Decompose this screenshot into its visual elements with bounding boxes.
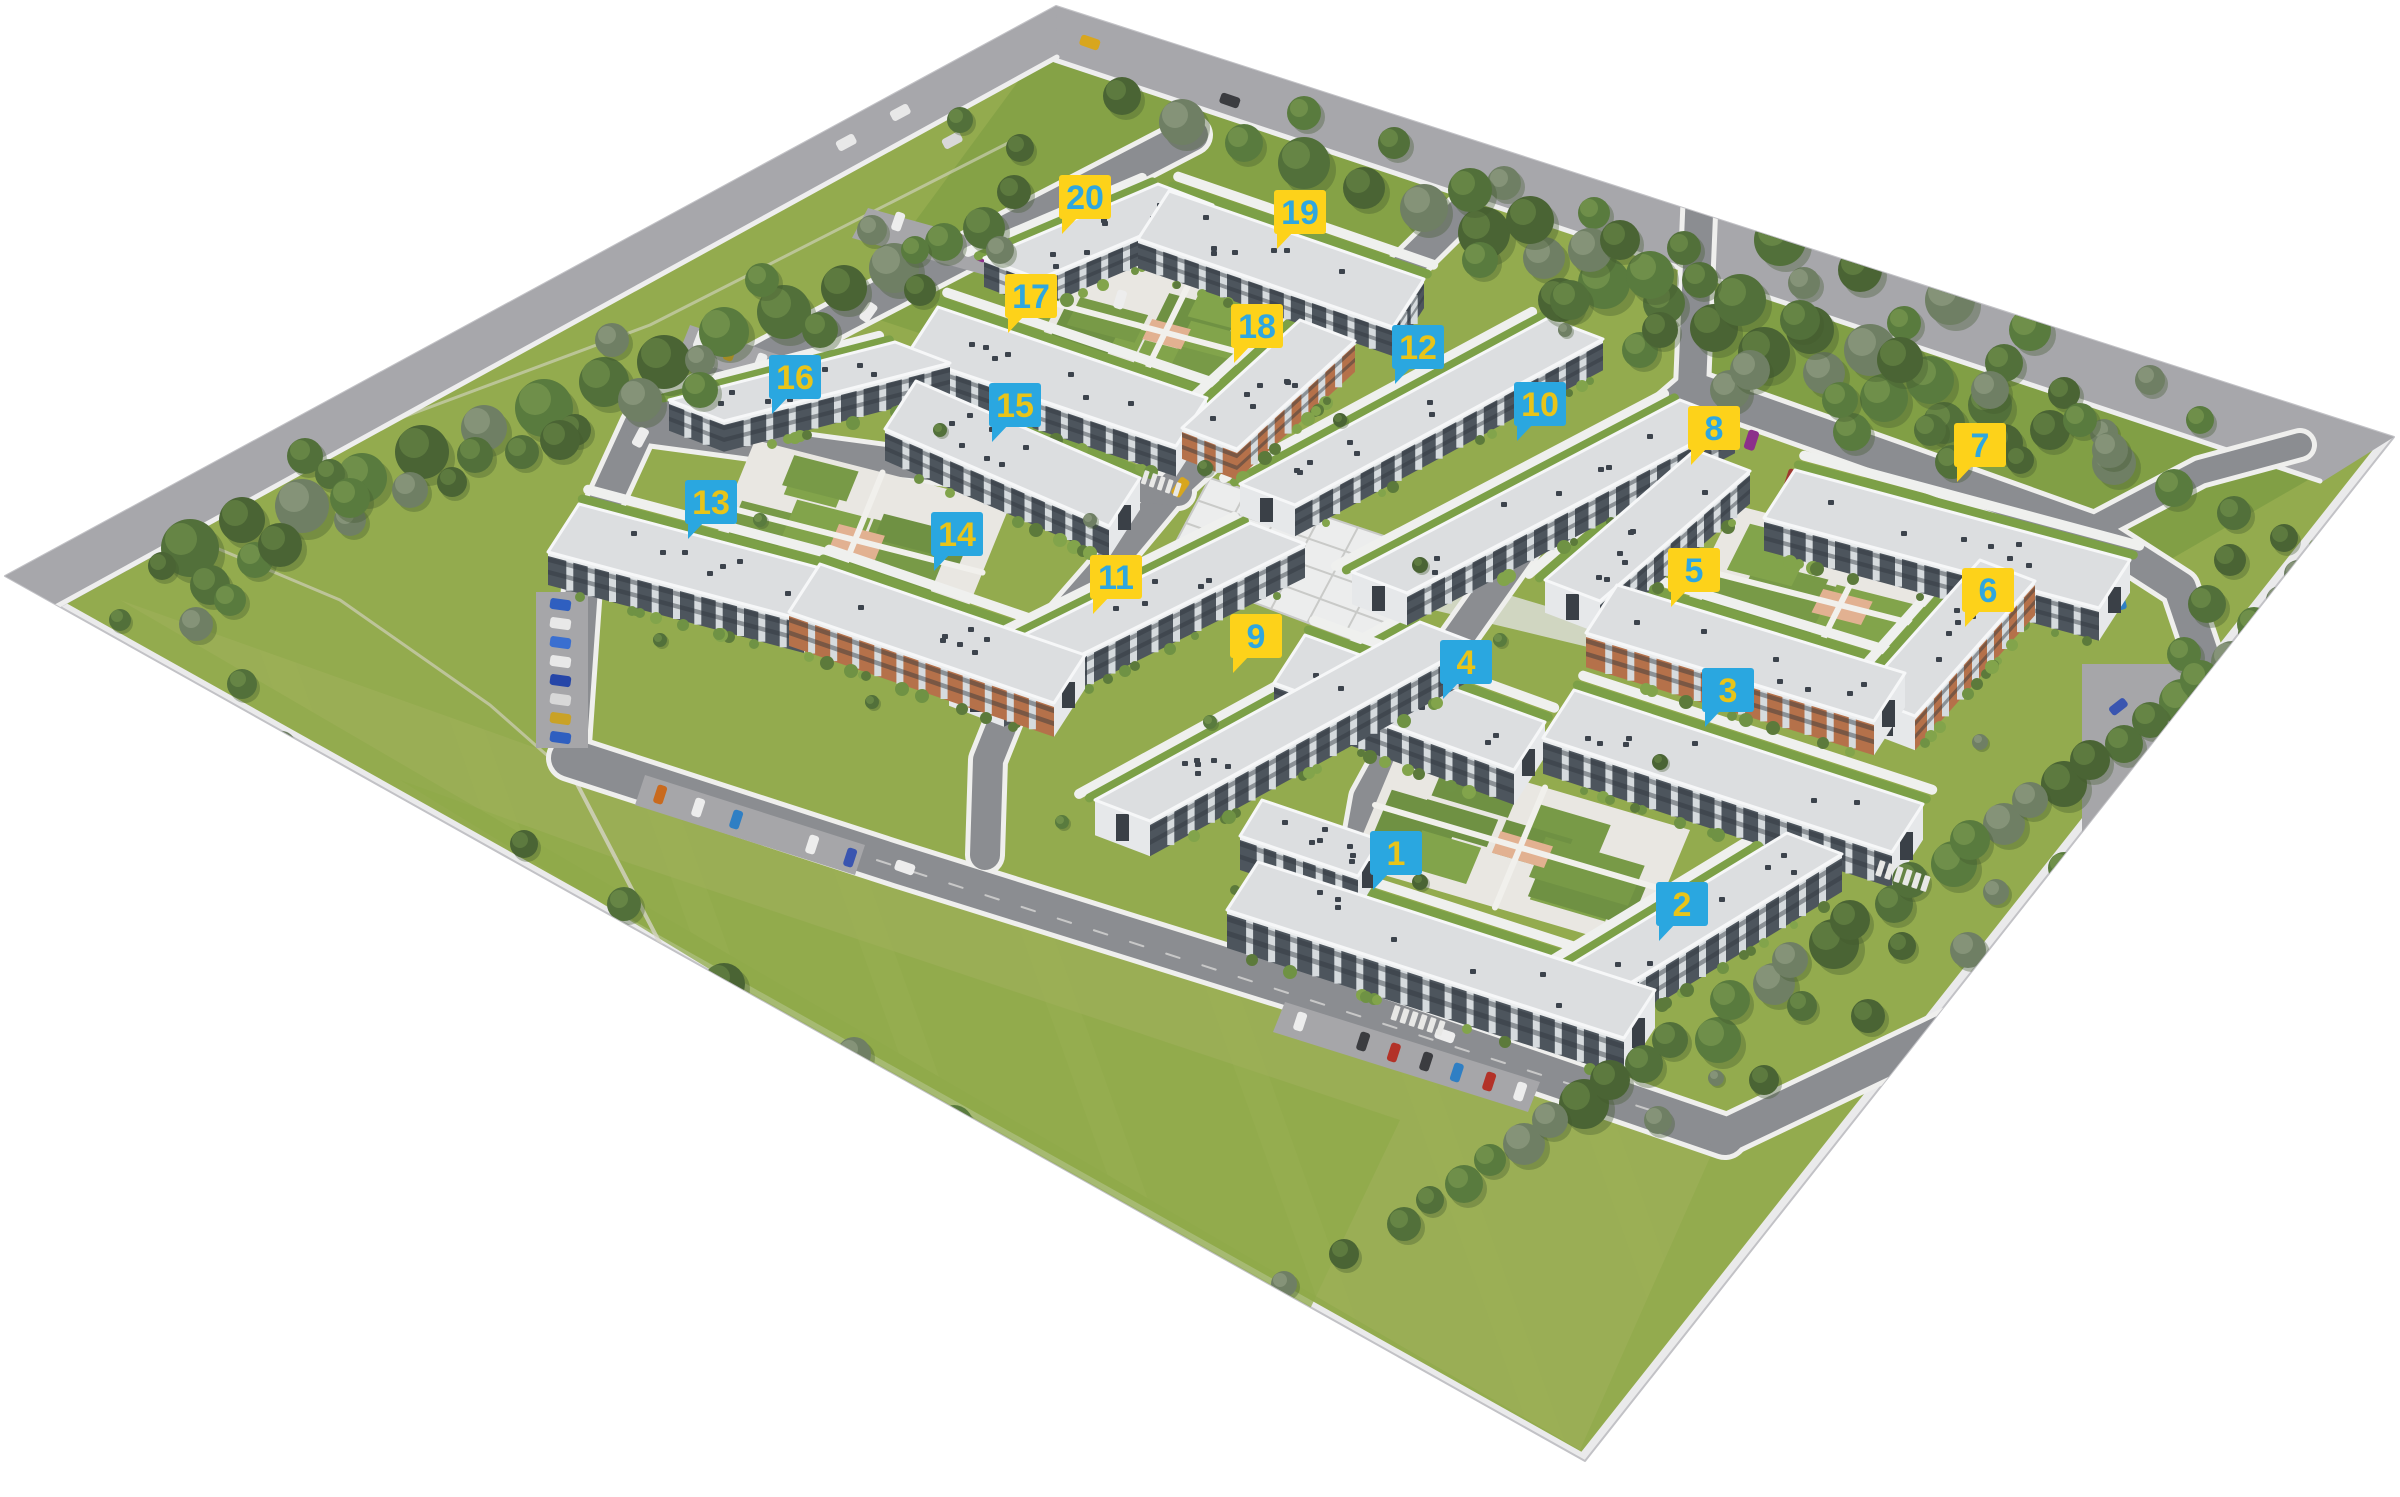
svg-text:18: 18 — [1238, 308, 1276, 346]
svg-text:16: 16 — [776, 359, 814, 397]
svg-text:6: 6 — [1979, 572, 1998, 610]
svg-text:9: 9 — [1247, 618, 1266, 656]
svg-text:4: 4 — [1457, 644, 1476, 682]
svg-text:15: 15 — [996, 387, 1034, 425]
svg-text:2: 2 — [1673, 886, 1692, 924]
svg-text:11: 11 — [1098, 559, 1134, 597]
svg-text:17: 17 — [1012, 278, 1050, 316]
svg-text:7: 7 — [1971, 427, 1990, 465]
svg-text:1: 1 — [1387, 835, 1406, 873]
svg-text:3: 3 — [1719, 672, 1738, 710]
svg-text:19: 19 — [1281, 194, 1319, 232]
svg-text:13: 13 — [692, 484, 730, 522]
svg-text:5: 5 — [1685, 552, 1704, 590]
svg-text:8: 8 — [1705, 410, 1724, 448]
svg-text:20: 20 — [1066, 179, 1104, 217]
svg-text:14: 14 — [938, 516, 976, 554]
svg-text:10: 10 — [1521, 386, 1559, 424]
svg-text:12: 12 — [1399, 329, 1437, 367]
